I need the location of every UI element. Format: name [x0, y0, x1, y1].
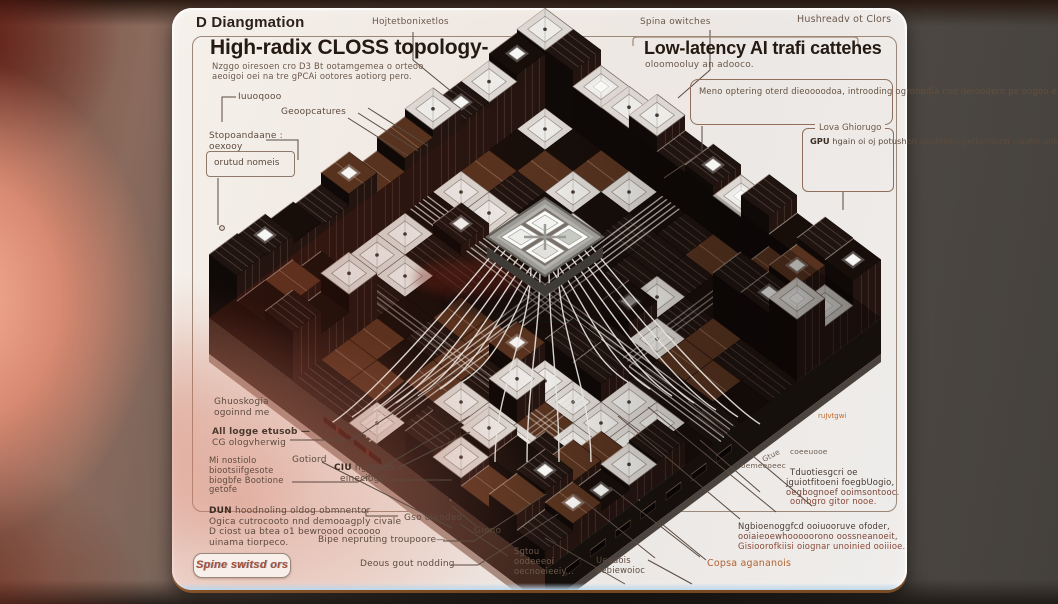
label-line-rest: hoodnoling oldog obmnentor: [232, 506, 371, 516]
glass-sheen: [172, 583, 907, 590]
fieldset-legend: Lova Ghiorugo: [815, 123, 885, 133]
label-ciu: CIU hgeotob eineciogd: [334, 463, 394, 485]
fieldset-line: GPU hgain oi oj: [810, 136, 876, 146]
fieldset-body: GPU hgain oi oj potushoit goofoiten gett…: [810, 136, 1058, 147]
right-note-box: Meno optering oterd dieoooodoa, introodi…: [690, 79, 893, 125]
note-line: ogronbdia coo deroodero po oogoo enoatio…: [895, 86, 1058, 96]
label-coeeuooe: coeeuooe: [790, 448, 828, 456]
label-line: Ogica cutrocooto nnd demooagply civale: [209, 517, 401, 528]
scene: ruJvtgwi D Diangmation Hojtetbonixetlos …: [0, 0, 1058, 604]
label-sgtou: Sgtou oodeeeoi oecnoeieeiy...: [514, 547, 574, 576]
label-ghuoskogia: Ghuoskogia ogoinnd me: [214, 397, 270, 419]
main-subtitle: Nzggo oiresoen cro D3 Bt ootamgemea o or…: [212, 62, 424, 82]
label-inner-paragraph: Tduotiesgcri oe jguiotfitoeni foegbUogio…: [790, 468, 899, 507]
fieldset-line: onbuomoung ootnd: [1043, 136, 1058, 146]
header-center-label: Hojtetbonixetlos: [372, 17, 449, 28]
label-line: aebiewoioc: [596, 566, 645, 576]
header-right-label: Hushreadv ot Clors: [797, 14, 891, 25]
label-all-logge: All logge etusob — CG ologvherwig: [212, 427, 310, 449]
label-line: Stopoandaane :: [209, 131, 283, 142]
label-bipe-nepruting: Bipe nepruting troupoore—: [318, 535, 445, 546]
label-deous-gout: Deous gout nodding: [360, 559, 455, 570]
label-iuuoqooo: Iuuoqooo: [238, 92, 281, 103]
label-line: DUN hoodnoling oldog obmnentor: [209, 506, 401, 517]
label-line: oonbgro gitor nooe.: [790, 497, 899, 507]
fieldset-line-rest: hgain oi oj: [830, 136, 876, 146]
label-gieno: Gieno: [474, 526, 501, 537]
doc-title: D Diangmation: [196, 14, 304, 31]
label-ueaaois: Ueaaois aebiewoioc: [596, 556, 645, 576]
fieldset-line: potushoit goofoiten: [878, 136, 959, 146]
label-line: oecnoeieeiy...: [514, 567, 574, 577]
right-title: Low-latency AI trafi cattehes: [644, 38, 882, 58]
label-line: ogoinnd me: [214, 408, 270, 419]
fieldset-line: gettoimond ciaofot: [962, 136, 1041, 146]
label-line: Gisioorofkiisi oiognar unoinied ooiiioe.: [738, 542, 905, 552]
right-subtitle: oloomooluy an adooco.: [645, 60, 754, 71]
spine-switches-box: Spine switsd ors: [193, 553, 291, 578]
subtitle-line: aeoigoi oei na tre gPCAi ootores aotiorg…: [212, 72, 424, 82]
gpu-fieldset: Lova Ghiorugo GPU hgain oi oj potushoit …: [802, 128, 894, 192]
gpu-bold: GPU: [810, 136, 830, 146]
main-title: High-radix CLOSS topology-: [210, 37, 488, 59]
label-mi-nostiolo: Mi nostiolo biootsiifgesote biogbfe Boot…: [209, 456, 284, 495]
note-line: Meno optering oterd dieoooodoa, introodi…: [699, 86, 893, 96]
label-line-rest: hgeotob: [352, 463, 394, 473]
boxed-label-orutud-nomeis: orutud nomeis: [206, 151, 295, 177]
label-ngb-paragraph: Ngbioenoggfcd ooiuooruve ofoder, ooiaieo…: [738, 522, 905, 551]
label-gso-olendeo: Gso olendeo: [404, 513, 462, 524]
label-line: eineciogd: [334, 474, 394, 485]
label-oemeeoeec: oemeeoeec: [741, 462, 786, 470]
label-copsa: Copsa agananois: [707, 558, 791, 569]
label-stopoandaane: Stopoandaane : oexooy: [209, 131, 283, 153]
label-line: CG ologvherwig: [212, 438, 310, 449]
label-line: All logge etusob —: [212, 427, 310, 438]
label-line: CIU hgeotob: [334, 463, 394, 474]
label-gotiord: Gotiord: [292, 455, 327, 466]
header-spine-switches-label: Spina owitches: [640, 17, 711, 28]
label-line: getofe: [209, 485, 284, 495]
ciu-bold: CIU: [334, 463, 352, 473]
dun-bold: DUN: [209, 506, 232, 516]
label-geoopcatures: Geoopcatures: [281, 107, 346, 118]
label-line: Ghuoskogia: [214, 397, 270, 408]
